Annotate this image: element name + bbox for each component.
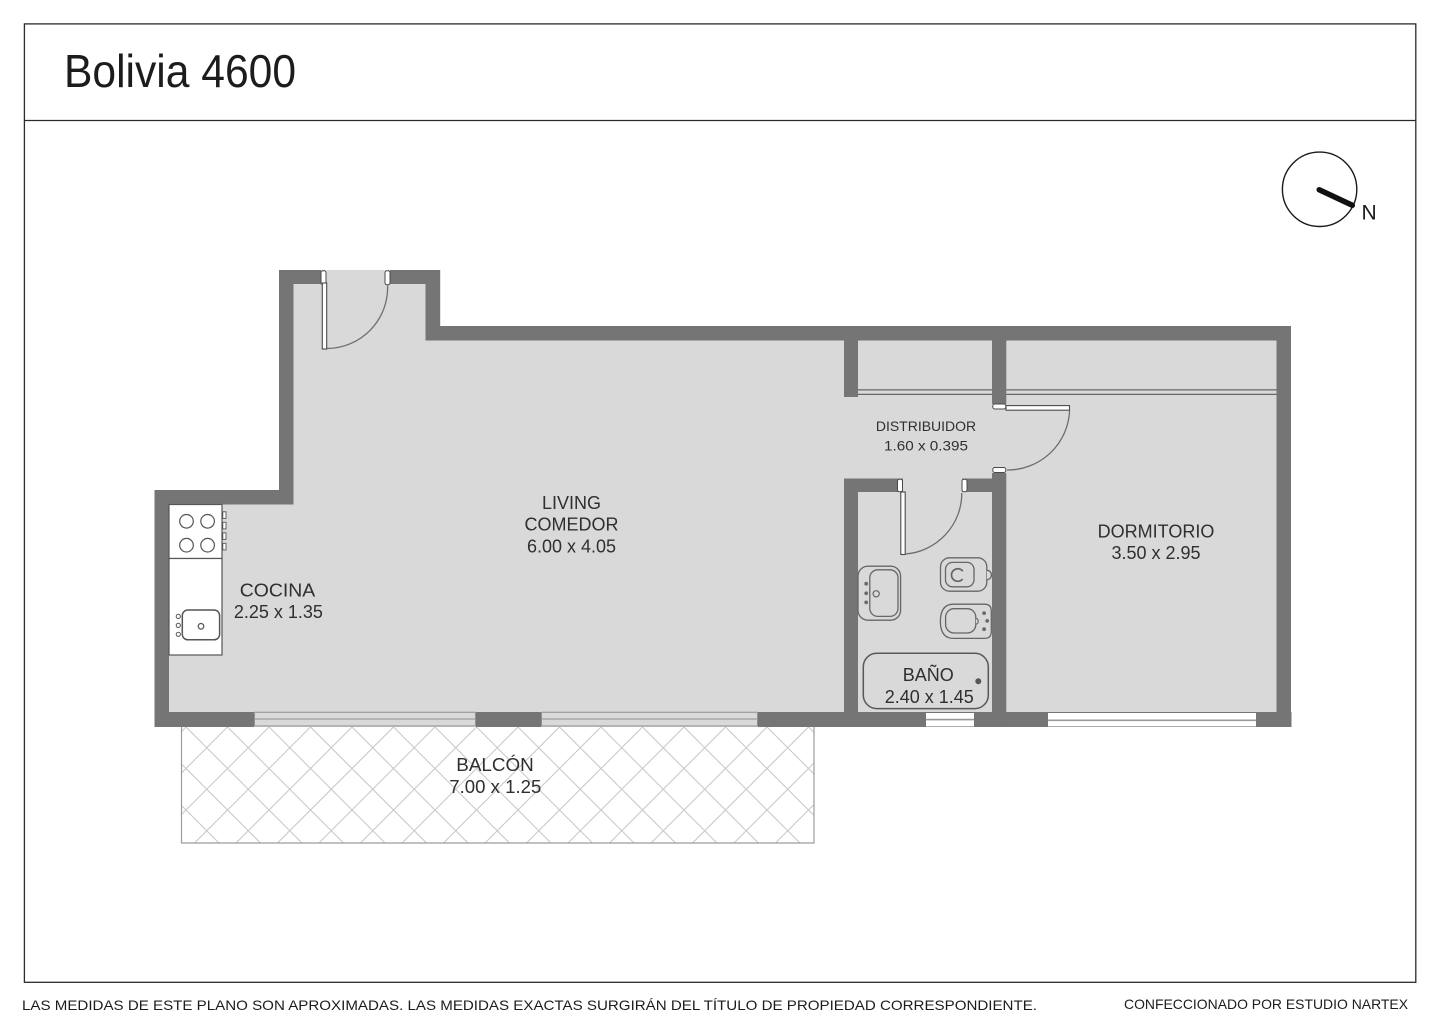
svg-text:2.25 x 1.35: 2.25 x 1.35 (234, 602, 323, 622)
svg-text:Bolivia 4600: Bolivia 4600 (64, 45, 296, 97)
svg-text:N: N (1362, 202, 1377, 225)
svg-text:DORMITORIO: DORMITORIO (1098, 522, 1215, 542)
svg-text:2.40 x 1.45: 2.40 x 1.45 (885, 687, 974, 707)
svg-text:LAS MEDIDAS DE ESTE PLANO SON: LAS MEDIDAS DE ESTE PLANO SON APROXIMADA… (22, 997, 1037, 1013)
svg-text:3.50 x 2.95: 3.50 x 2.95 (1111, 543, 1200, 563)
svg-text:DISTRIBUIDOR: DISTRIBUIDOR (876, 418, 976, 434)
svg-text:BALCÓN: BALCÓN (456, 754, 534, 775)
svg-text:COMEDOR: COMEDOR (525, 515, 619, 535)
svg-text:7.00 x 1.25: 7.00 x 1.25 (449, 777, 541, 797)
svg-text:COCINA: COCINA (240, 581, 316, 601)
svg-text:1.60 x 0.395: 1.60 x 0.395 (884, 438, 968, 454)
svg-text:CONFECCIONADO POR ESTUDIO NART: CONFECCIONADO POR ESTUDIO NARTEX (1124, 996, 1409, 1012)
svg-text:LIVING: LIVING (542, 493, 601, 513)
svg-text:BAÑO: BAÑO (903, 664, 954, 685)
svg-text:6.00 x 4.05: 6.00 x 4.05 (527, 537, 616, 557)
